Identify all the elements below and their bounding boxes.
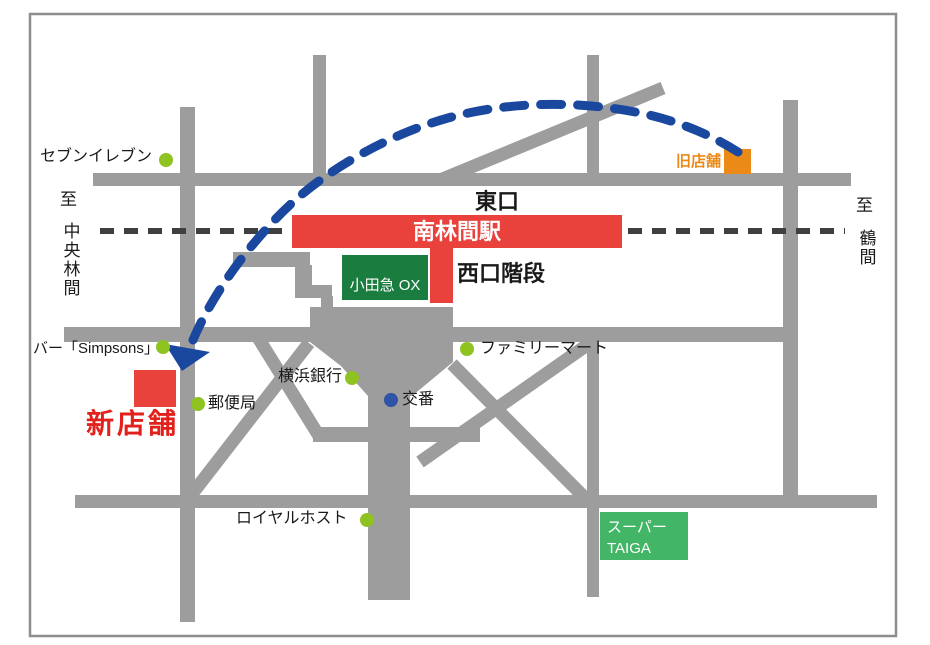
seven-eleven-label: セブンイレブン [40, 148, 152, 166]
road-top-vertical-1 [313, 55, 326, 186]
station-name-label: 南林間駅 [292, 219, 622, 244]
direction-left-to: 至 [60, 190, 77, 210]
post-office-dot [191, 397, 205, 411]
direction-right-destination: 鶴間 [856, 229, 876, 267]
super-taiga-label: スーパー TAIGA [607, 517, 667, 559]
post-office-label: 郵便局 [208, 395, 256, 413]
relocation-arrowhead [165, 344, 210, 371]
new-store-building [134, 370, 176, 407]
access-map: セブンイレブン バー「Simpsons」 郵便局 横浜銀行 交番 ファミリーマー… [0, 0, 930, 645]
family-mart-dot [460, 342, 474, 356]
koban-label: 交番 [402, 391, 434, 409]
road-bottom-horizontal [75, 495, 877, 508]
yokohama-bank-label: 横浜銀行 [278, 368, 342, 386]
road-right-vertical [783, 100, 798, 507]
new-store-label: 新店舗 [86, 408, 179, 440]
west-exit-stairs-label: 西口階段 [457, 261, 545, 286]
road-diagonal-left-sw [192, 343, 309, 494]
bar-simpsons-label: バー「Simpsons」 [33, 340, 159, 357]
old-store-label: 旧店舗 [648, 153, 721, 170]
map-canvas [0, 0, 930, 645]
odakyu-ox-label: 小田急 OX [342, 277, 428, 294]
stair-path-2 [295, 265, 312, 298]
family-mart-label: ファミリーマート [480, 340, 608, 358]
west-exit-stairs-bar [430, 248, 453, 303]
yokohama-bank-dot [345, 371, 359, 385]
super-taiga-line1: スーパー [607, 517, 667, 538]
east-exit-label: 東口 [475, 189, 519, 214]
royal-host-label: ロイヤルホスト [236, 510, 348, 528]
direction-right-to: 至 [856, 196, 873, 216]
koban-dot [384, 393, 398, 407]
direction-left-destination: 中央林間 [60, 222, 80, 298]
royal-host-dot [360, 513, 374, 527]
road-network [64, 55, 877, 622]
super-taiga-line2: TAIGA [607, 538, 667, 559]
map-frame [30, 14, 896, 636]
road-mid-vertical [587, 338, 599, 597]
seven-eleven-dot [159, 153, 173, 167]
road-top-horizontal [93, 173, 851, 186]
stair-path-5 [332, 309, 354, 325]
stair-path-4 [321, 296, 333, 315]
